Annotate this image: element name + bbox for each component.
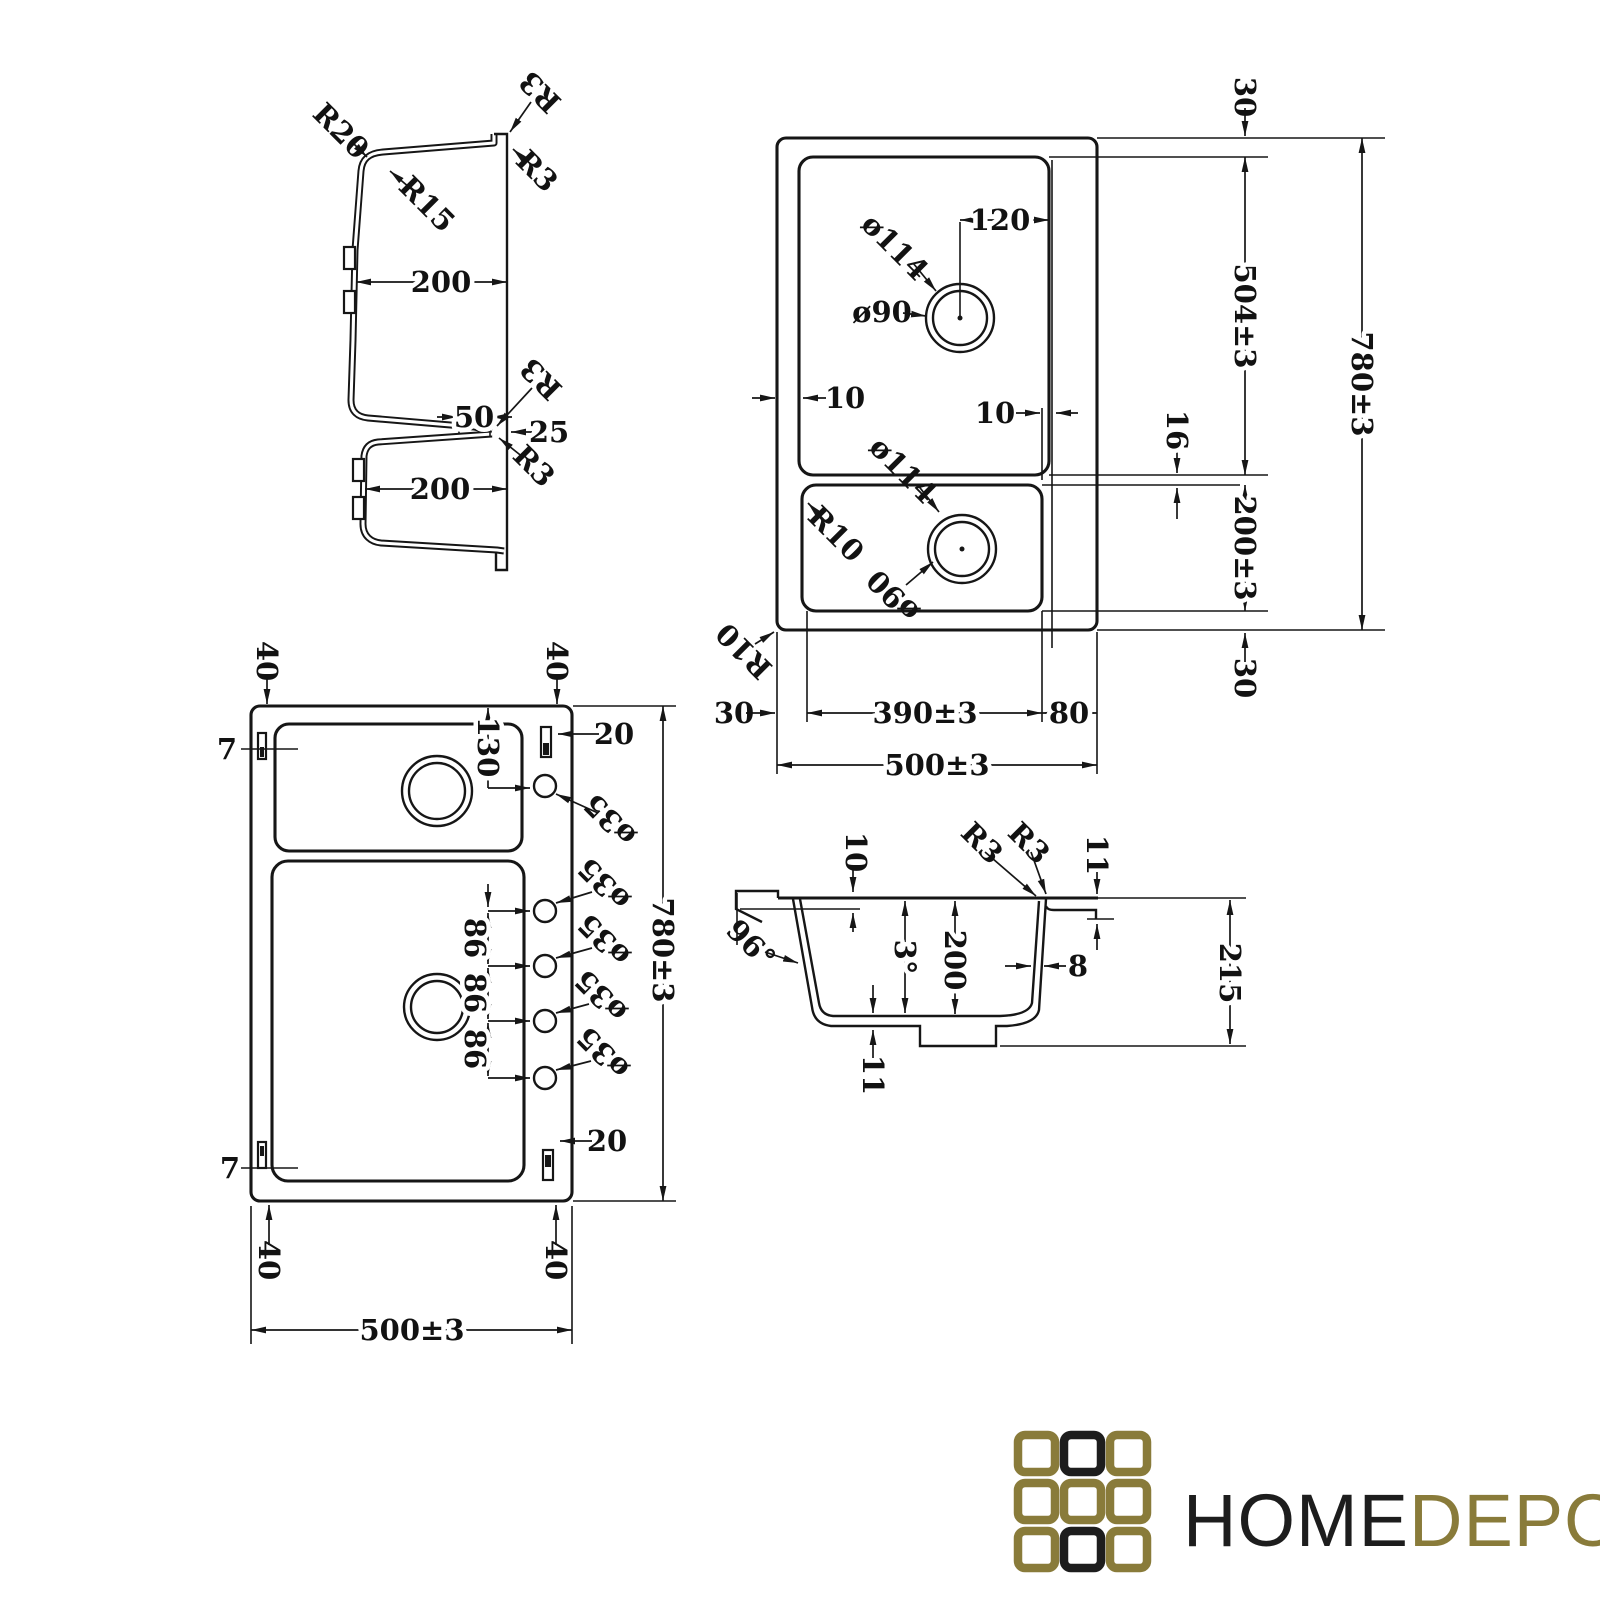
dim-hole-spacing: 86 — [458, 973, 492, 1013]
dim-clip-top: 7 — [217, 732, 237, 766]
dim-draft-angle: 3° — [888, 940, 922, 975]
dim-big-bowl-length: 504±3 — [1228, 263, 1262, 368]
dim-hole-diameter: ø35 — [568, 963, 634, 1029]
dim-corner-top-right: 40 — [540, 641, 574, 681]
dim-drain-inner-top: ø90 — [852, 295, 912, 329]
dim-clip-bottom: 7 — [220, 1151, 240, 1185]
profile-section-view: 200 50 25 R20 R3 R15 R3 R3 R3 200 — [306, 64, 569, 570]
faucet-hole — [534, 775, 556, 797]
logo-text-home: HOME — [1183, 1479, 1409, 1562]
dim-gap-left: 10 — [825, 381, 865, 415]
cross-section-view: 10 R3 R3 11 96° 3° 200 8 215 11 — [720, 815, 1247, 1095]
dim-bowl-width: 390±3 — [872, 696, 977, 730]
dim-gap-right: 10 — [975, 396, 1015, 430]
holes-big-bowl — [272, 861, 524, 1181]
dim-rim-step: 10 — [839, 832, 873, 872]
dim-deck-width: 80 — [1049, 696, 1089, 730]
dim-hole-diameter: ø35 — [570, 1020, 636, 1086]
profile-rim-line — [494, 134, 507, 570]
dim-clip-right-bottom: 20 — [587, 1124, 627, 1158]
dim-corner-top-left: 40 — [250, 641, 284, 681]
brand-logo: HOMEDEPO — [1018, 1435, 1600, 1568]
logo-text-depo: DEPO — [1409, 1479, 1600, 1562]
dim-bowl-depth: 200 — [938, 930, 972, 991]
faucet-hole — [534, 955, 556, 977]
dim-wall-angle: 96° — [720, 913, 783, 976]
dim-overall-depth: 215 — [1213, 943, 1247, 1004]
dim-first-hole-offset: 130 — [471, 717, 505, 778]
drawing-canvas: 200 50 25 R20 R3 R15 R3 R3 R3 200 — [0, 0, 1600, 1600]
dim-margin-bottom: 30 — [1228, 658, 1262, 698]
dim-margin-top: 30 — [1228, 77, 1262, 117]
profile-clip — [353, 497, 364, 519]
dim-holes-overall-width: 500±3 — [359, 1313, 464, 1347]
profile-clip — [344, 291, 355, 313]
holes-drain-small-inner — [409, 763, 465, 819]
dim-r3-rim: R3 — [509, 143, 564, 198]
dim-overall-width: 500±3 — [884, 748, 989, 782]
dim-hole-diameter: ø35 — [571, 907, 637, 973]
dim-corner-bottom-left: 40 — [252, 1240, 286, 1280]
dim-r3-outer: R3 — [1001, 815, 1056, 870]
dim-holes-overall-length: 780±3 — [646, 897, 680, 1002]
dim-drain-outer-bottom: ø114 — [863, 430, 944, 511]
dim-bowl-corner-radius: R10 — [801, 499, 871, 569]
logo-wordmark: HOMEDEPO — [1183, 1479, 1600, 1562]
dim-divider: 16 — [1160, 410, 1194, 450]
faucet-holes-view: 40 40 7 20 130 86 86 86 ø35 ø35 ø35 ø35 … — [217, 641, 680, 1347]
dim-hole-spacing: 86 — [458, 1029, 492, 1069]
dim-overall-length: 780±3 — [1345, 331, 1379, 436]
dim-outer-corner-radius: R10 — [709, 616, 779, 686]
dim-hole-spacing: 86 — [458, 918, 492, 958]
dim-wall-thickness: 8 — [1068, 949, 1088, 983]
dim-overlap: 50 — [454, 400, 494, 434]
dim-top-bowl-width: 200 — [411, 265, 472, 299]
dim-bottom-bowl-width: 200 — [410, 472, 471, 506]
dim-drain-inner-bottom: ø90 — [860, 563, 926, 629]
section-right-lip — [1046, 906, 1096, 919]
sink-technical-drawing: 200 50 25 R20 R3 R15 R3 R3 R3 200 — [0, 0, 1600, 1600]
faucet-hole — [534, 1010, 556, 1032]
dim-corner-bottom-right: 40 — [539, 1240, 573, 1280]
dim-small-bowl-length: 200±3 — [1228, 495, 1262, 600]
plan-view: 30 504±3 780±3 16 200±3 30 10 10 120 ø11… — [709, 77, 1385, 782]
drain-bottom-center — [960, 547, 965, 552]
dim-base-step: 11 — [856, 1055, 890, 1095]
profile-clip — [344, 247, 355, 269]
dim-r3-top: R3 — [512, 64, 567, 119]
faucet-hole — [534, 900, 556, 922]
dim-margin-left: 30 — [714, 696, 754, 730]
dim-clip-right-top: 20 — [594, 717, 634, 751]
dim-drain-outer-top: ø114 — [855, 207, 936, 288]
dim-r3-inner: R3 — [954, 815, 1009, 870]
dim-r15: R15 — [392, 169, 462, 239]
holes-drain-big-inner — [411, 981, 463, 1033]
dim-edge-drop: 11 — [1080, 835, 1114, 875]
dim-hole-diameter: ø35 — [571, 851, 637, 917]
mounting-clips — [258, 727, 553, 1180]
faucet-hole — [534, 1067, 556, 1089]
logo-grid-icon — [1018, 1435, 1147, 1568]
dim-drain-offset: 120 — [970, 203, 1031, 237]
profile-clip — [353, 459, 364, 481]
dim-hole-diameter: ø35 — [577, 787, 643, 853]
holes-drain-small-outer — [402, 756, 472, 826]
